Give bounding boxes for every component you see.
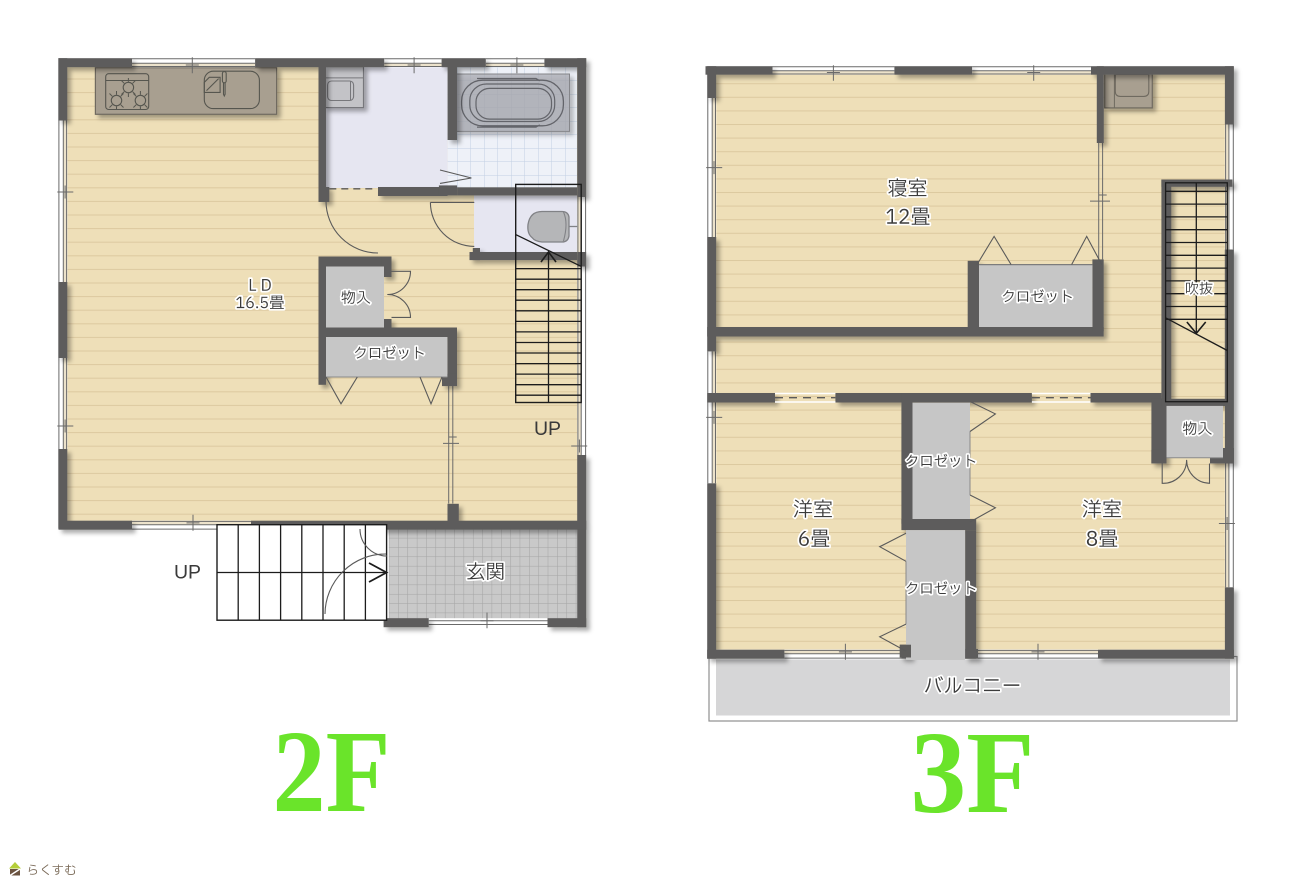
svg-text:UP: UP (174, 562, 201, 584)
svg-text:UP: UP (534, 418, 561, 440)
svg-text:3F: 3F (911, 707, 1035, 838)
svg-text:2F: 2F (273, 706, 391, 837)
